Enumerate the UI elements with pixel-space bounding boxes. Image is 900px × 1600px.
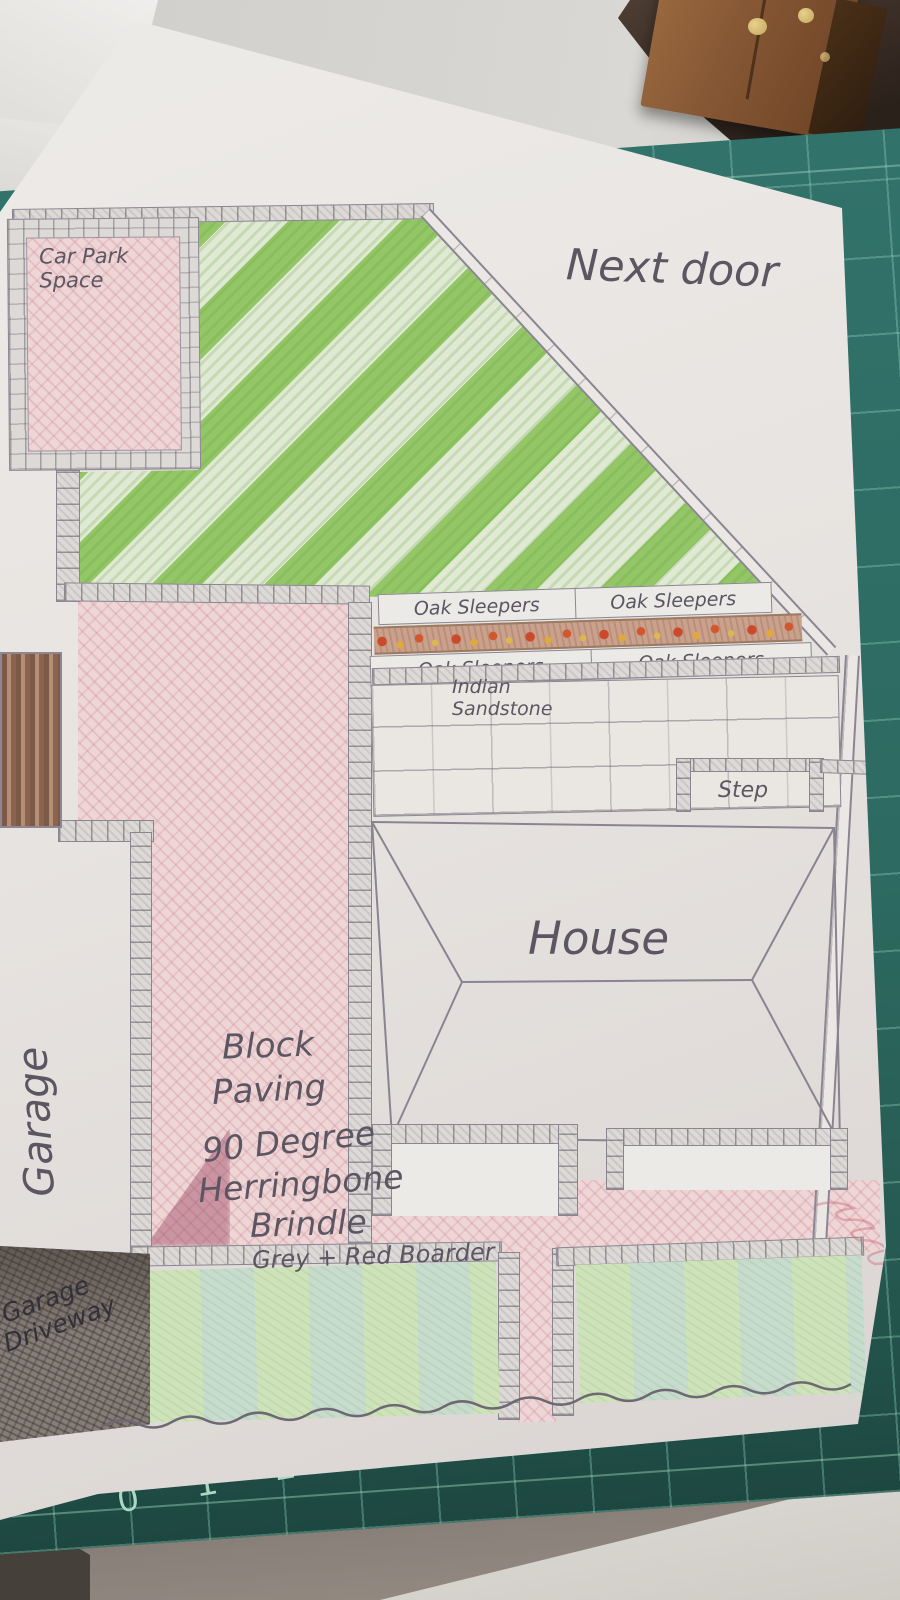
garage-label: Garage [8,1046,64,1198]
car-park-label-line1: Car Park [39,243,177,268]
paving-note-line1: Block [221,1024,314,1067]
plan-paper: Car Park Space Next door Oak Sleepers Oa… [0,0,900,1600]
paving-note-line5: Brindle [249,1202,367,1245]
indian-sandstone-label: Indian Sandstone [452,676,553,720]
house-label: House [528,912,669,965]
brick-border [64,582,370,604]
house-outline [362,812,848,1160]
oak-sleepers-label: Oak Sleepers [414,594,540,620]
house-landing-right [606,1128,848,1190]
car-park-area: Car Park Space [7,217,201,471]
wooden-box-dot [820,52,830,62]
gate-decking [0,652,62,828]
car-park-label-line2: Space [39,267,177,292]
brick-border [130,832,152,1248]
wooden-box-dot [748,18,767,35]
step-area: Step [676,758,824,812]
step-label: Step [718,778,768,803]
next-door-label: Next door [565,240,779,297]
photo-scene: 0 1 2 3 4 5 6 19 Car Park Space Next doo… [0,0,900,1600]
paving-note-line2: Paving [211,1067,327,1113]
oak-sleepers-label: Oak Sleepers [610,587,736,613]
wooden-box-dot [798,8,814,23]
red-scribble [808,1196,884,1296]
